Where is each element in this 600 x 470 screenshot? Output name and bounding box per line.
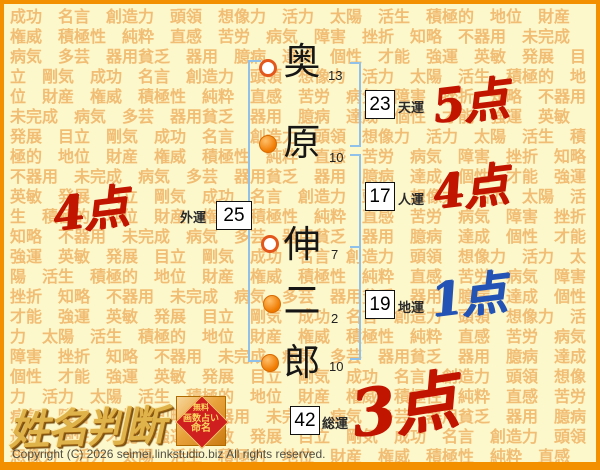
stroke-count-1: 13 [328,68,342,83]
person-luck-label: 人運 [398,189,424,208]
badge-line-3: 命名 [176,423,226,435]
fortune-marker-1 [259,59,277,77]
heaven-luck-label: 天運 [398,97,424,116]
stroke-count-3: 7 [331,247,338,262]
person-luck-value: 17 [365,182,395,211]
name-char-1: 奥 [281,43,323,81]
earth-luck-label: 地運 [398,297,424,316]
total-luck-label: 総運 [322,413,348,432]
stroke-count-5: 10 [329,359,343,374]
outer-luck-value: 25 [216,201,252,230]
name-char-5: 郎 [281,344,323,382]
fortune-marker-4 [263,295,281,313]
stroke-count-2: 10 [329,150,343,165]
outer-luck-label: 外運 [180,207,206,226]
name-char-4: 二 [281,282,323,320]
total-luck-score: 3点 [343,348,461,455]
name-char-3: 伸 [281,226,323,264]
copyright-text: Copyright (C) 2026 seimei.linkstudio.biz… [12,447,325,461]
earth-luck-bracket [350,246,361,360]
fortune-marker-5 [261,354,279,372]
outer-luck-score: 4点 [48,170,130,245]
total-luck-value: 42 [290,406,320,435]
seimei-handan-result-page: 成功 名言 創造力 頭領 想像力 活力 太陽 活生 積極的 地位 財産 権威 積… [0,0,600,470]
name-char-2: 原 [281,124,323,162]
person-luck-bracket [350,154,361,248]
earth-luck-score: 1点 [426,256,508,331]
heaven-luck-value: 23 [365,90,395,119]
fortune-marker-3 [261,235,279,253]
badge-line-1: 無料 [176,403,226,413]
stroke-count-4: 2 [331,311,338,326]
free-naming-badge[interactable]: 無料 画数占い 命名 [176,396,226,446]
heaven-luck-score: 5点 [428,62,510,137]
earth-luck-value: 19 [365,290,395,319]
fortune-marker-2 [259,135,277,153]
badge-line-2: 画数占い [176,413,226,424]
heaven-luck-bracket [350,62,361,147]
person-luck-score: 4点 [428,148,510,223]
